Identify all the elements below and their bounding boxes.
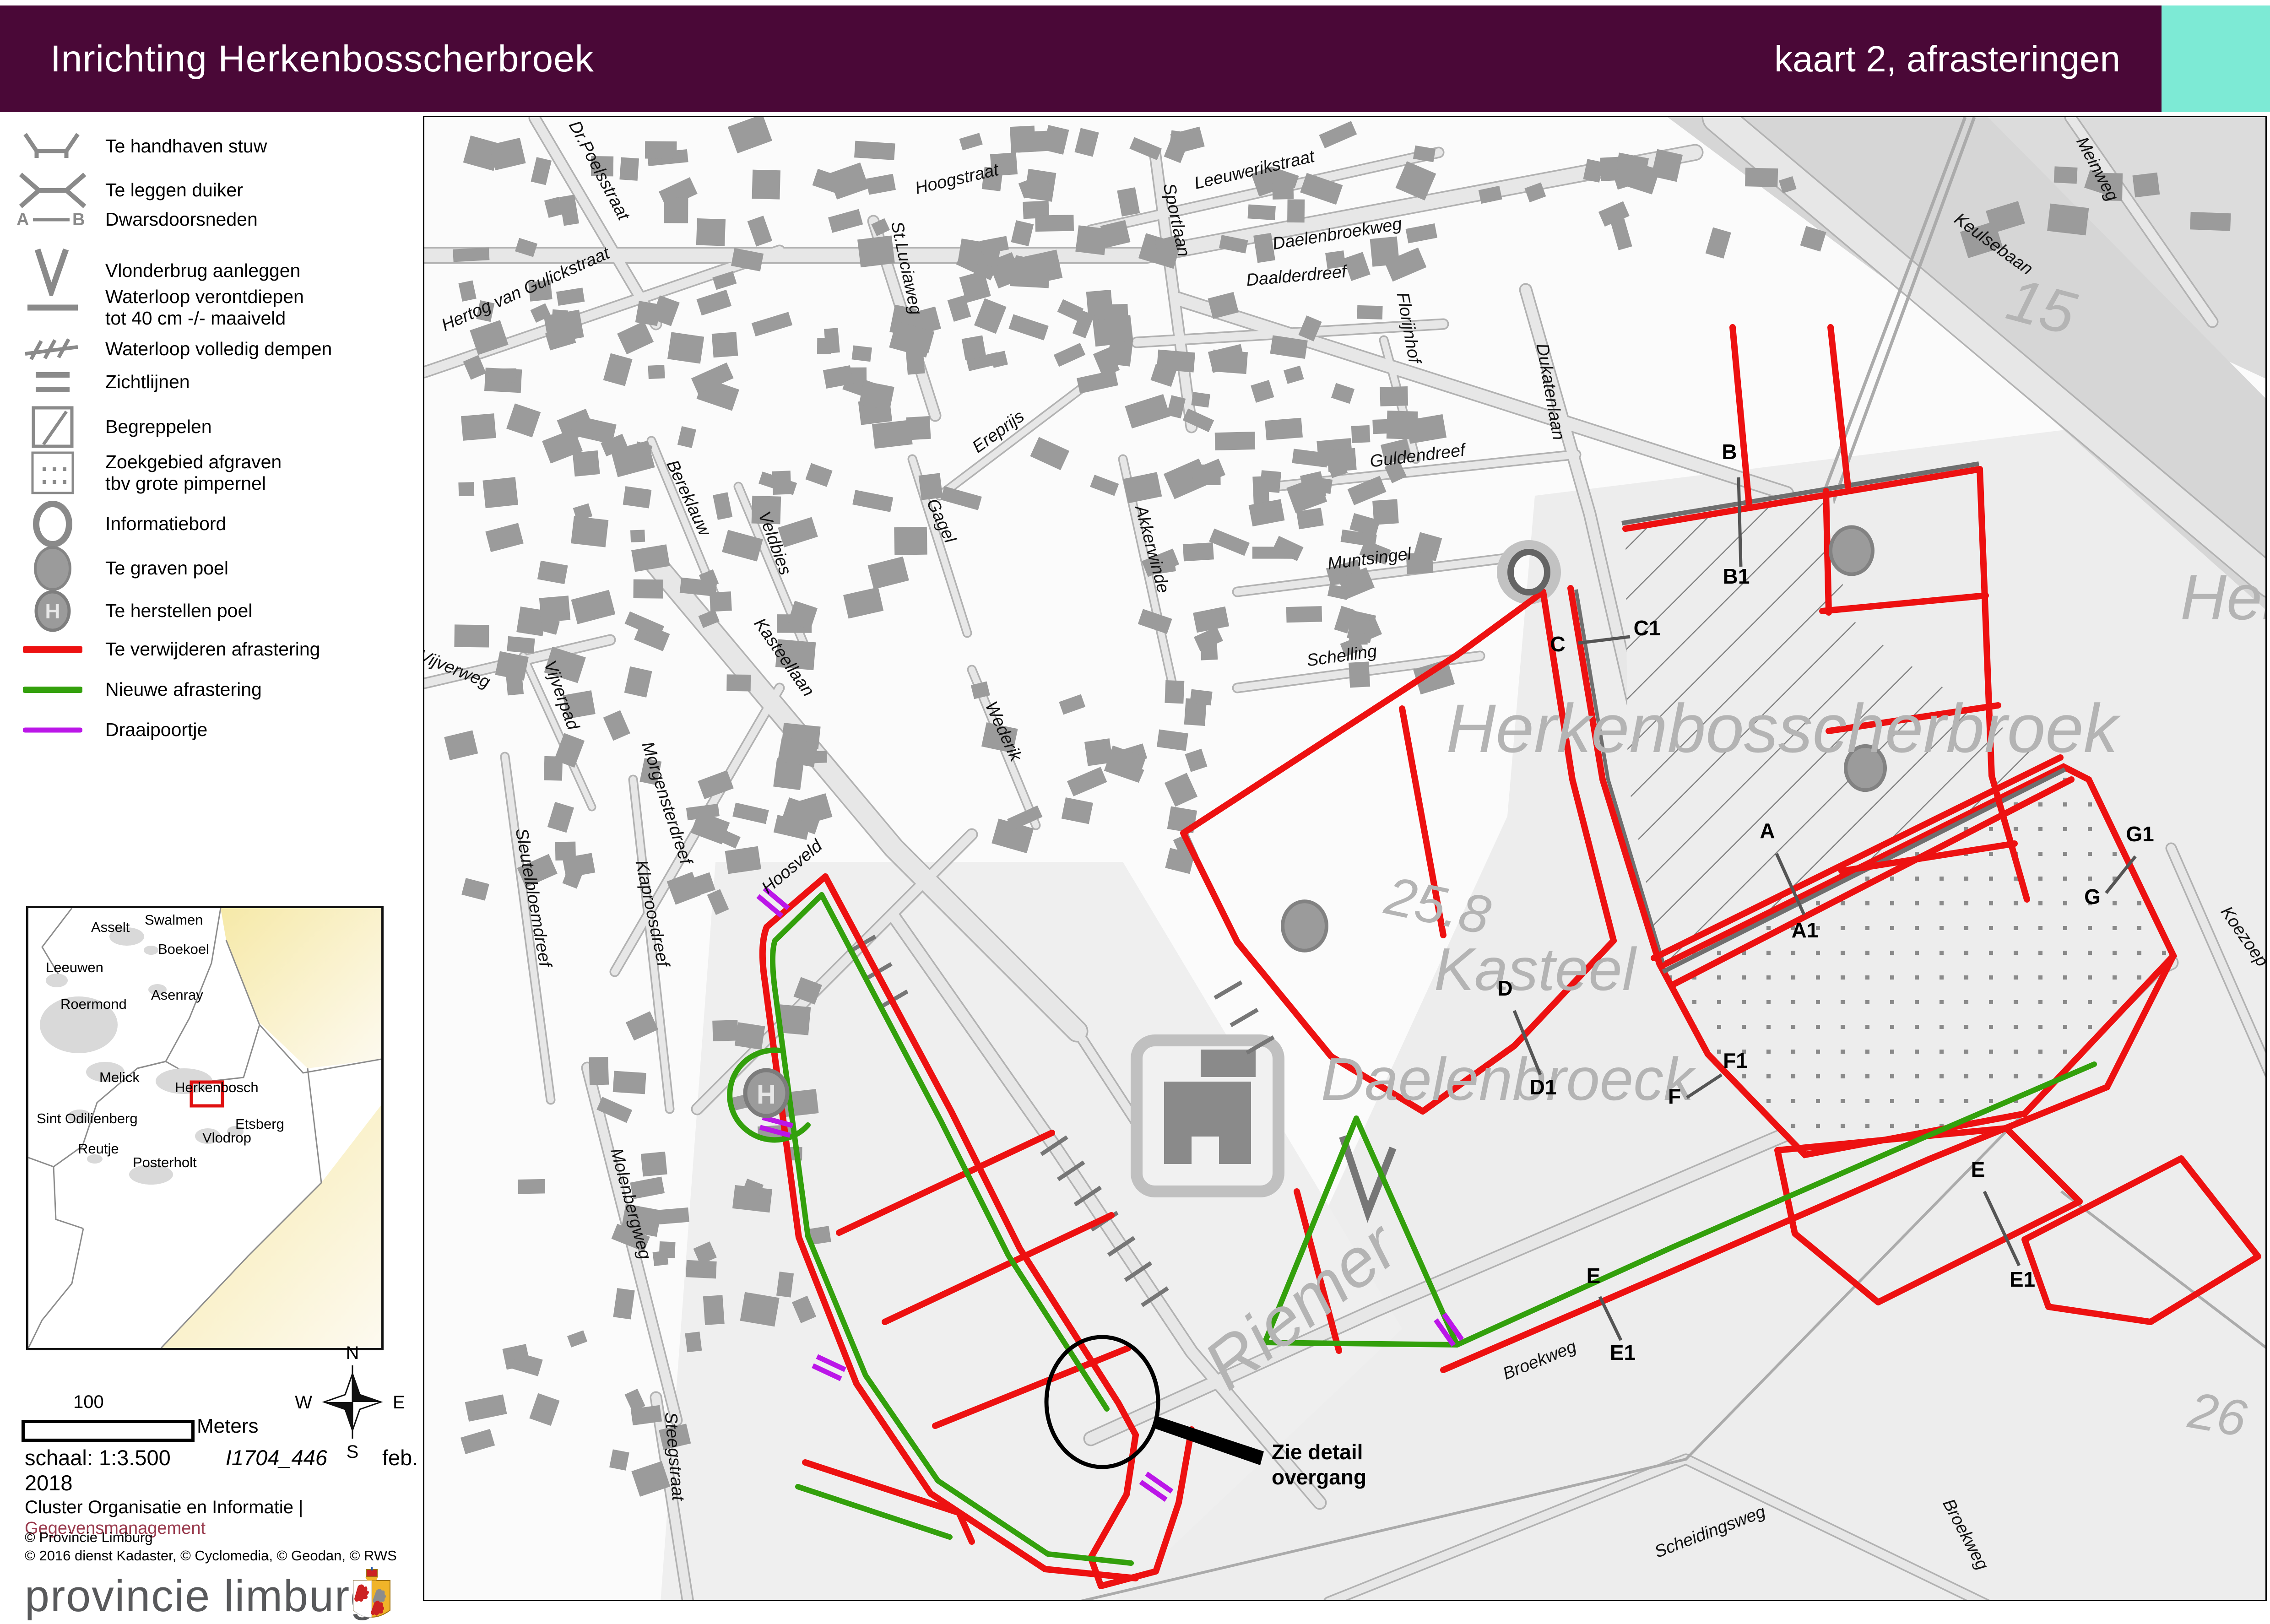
zoekgebied-icon	[0, 450, 105, 496]
page-title: Inrichting Herkenbosscherbroek	[0, 38, 594, 81]
zichtlijnen-icon	[0, 368, 105, 396]
legend-item-label: Begreppelen	[105, 416, 212, 438]
legend-item-zichtlijnen: Zichtlijnen	[0, 368, 190, 396]
legend-item-label: Vlonderbrug aanleggen	[105, 260, 300, 281]
province-coat-of-arms	[344, 1567, 399, 1624]
header-bar: Inrichting Herkenbosscherbroek kaart 2, …	[0, 5, 2162, 112]
inset-place-label: Vlodrop	[202, 1130, 251, 1146]
section-leader-line	[1739, 477, 1741, 567]
section-label-d: D	[1497, 976, 1512, 1000]
svg-text:B: B	[72, 210, 85, 229]
te-herstellen-poel-mark: H	[745, 1070, 787, 1116]
section-label-a: A	[1760, 819, 1775, 843]
legend-item-label: Nieuwe afrastering	[105, 679, 262, 700]
dwarsdoorsnede-icon: AB	[0, 208, 105, 231]
begreppelen-icon	[0, 404, 105, 450]
legend-item-label: Zichtlijnen	[105, 371, 190, 393]
watermark-26: 26	[2184, 1381, 2251, 1448]
copyright-sources: © 2016 dienst Kadaster, © Cyclomedia, © …	[25, 1548, 397, 1564]
svg-text:A: A	[16, 210, 29, 229]
legend-item-waterloop-dempen: Waterloop volledig dempen	[0, 336, 332, 363]
scalebar-unit: Meters	[197, 1415, 258, 1438]
copyright-province: © Provincie Limburg	[25, 1529, 153, 1546]
rode-lijn-icon	[0, 643, 105, 656]
inset-place-label: Melick	[99, 1069, 140, 1085]
inset-place-label: Asenray	[151, 987, 203, 1003]
legend-item-stuw: Te handhaven stuw	[0, 130, 267, 162]
section-label-e: E	[1587, 1264, 1601, 1288]
duiker-icon	[0, 170, 105, 211]
section-label-g1: G1	[2126, 822, 2154, 846]
watermark-kasteel: Kasteel	[1434, 936, 1637, 1003]
fence-to-remove	[1826, 491, 1829, 612]
compass-west-label: W	[295, 1392, 312, 1413]
section-label-f: F	[1668, 1084, 1681, 1108]
svg-text:H: H	[45, 599, 60, 623]
waterloop-dempen-icon	[0, 336, 105, 363]
section-label-e1: E1	[1610, 1341, 1636, 1364]
watermark-daelenbroeck: Daelenbroeck	[1321, 1045, 1696, 1113]
inset-overview-map: AsseltSwalmenBoekoelLeeuwenRoermondAsenr…	[26, 906, 384, 1350]
inset-place-label: Swalmen	[145, 912, 203, 928]
legend-item-te-herstellen-poel: HTe herstellen poel	[0, 588, 252, 634]
te-graven-poel-icon	[0, 543, 105, 594]
legend-item-label: Dwarsdoorsneden	[105, 209, 258, 230]
section-label-a1: A1	[1792, 918, 1819, 942]
legend-item-label: Draaipoortje	[105, 719, 207, 741]
scale-value: schaal: 1:3.500	[25, 1445, 171, 1470]
section-label-b1: B1	[1723, 564, 1750, 588]
compass-rose: NSWE	[293, 1343, 412, 1462]
section-label-c1: C1	[1634, 616, 1661, 640]
te-herstellen-poel-icon: H	[0, 588, 105, 634]
legend-item-label: Te graven poel	[105, 558, 228, 579]
waterloop-verontdiepen-icon	[0, 301, 105, 314]
inset-place-label: Posterholt	[133, 1154, 197, 1170]
informatiebord-icon	[0, 499, 105, 549]
legend-item-rode-lijn: Te verwijderen afrastering	[0, 639, 320, 660]
inset-place-label: Leeuwen	[46, 959, 103, 975]
legend-item-dwarsdoorsnede: ABDwarsdoorsneden	[0, 208, 258, 231]
legend-item-te-graven-poel: Te graven poel	[0, 543, 228, 594]
scalebar-distance: 100	[73, 1392, 104, 1413]
legend-item-label: Waterloop verontdiepen tot 40 cm -/- maa…	[105, 286, 304, 329]
watermark-herkenbosscherbroek: Herkenbosscherbroek	[1446, 690, 2121, 767]
inset-place-label: Herkenbosch	[175, 1079, 259, 1095]
header-accent-block	[2162, 5, 2270, 112]
compass-east-label: E	[393, 1392, 405, 1413]
inset-map-canvas: AsseltSwalmenBoekoelLeeuwenRoermondAsenr…	[28, 908, 381, 1348]
groene-lijn-icon	[0, 683, 105, 697]
legend-item-label: Te herstellen poel	[105, 600, 252, 622]
section-label-f1: F1	[1723, 1049, 1748, 1072]
legend-item-draaipoortje: Draaipoortje	[0, 719, 207, 741]
legend-item-label: Te leggen duiker	[105, 179, 243, 201]
scale-statement: schaal: 1:3.500I1704_446feb. 2018	[25, 1445, 423, 1495]
legend-item-label: Waterloop volledig dempen	[105, 338, 332, 360]
herstel-poel-letter: H	[757, 1080, 776, 1110]
inset-place-label: Roermond	[60, 996, 127, 1012]
legend-item-informatiebord: Informatiebord	[0, 499, 226, 549]
legend-item-begreppelen: Begreppelen	[0, 404, 212, 450]
section-label-c: C	[1550, 632, 1565, 656]
inset-place-label: Reutje	[78, 1141, 119, 1157]
side-panel: Te handhaven stuwTe leggen duikerABDwars…	[0, 112, 423, 1606]
te-graven-poel-mark	[1831, 527, 1873, 574]
document-id: I1704_446	[226, 1445, 327, 1470]
scalebar	[22, 1420, 195, 1442]
legend-item-label: Te handhaven stuw	[105, 135, 267, 157]
main-map: H HerkenbosscherbroekKasteelDaelenbroeck…	[423, 116, 2267, 1601]
legend-item-label: Informatiebord	[105, 513, 226, 535]
detail-note-line1: Zie detail	[1272, 1440, 1363, 1464]
province-logo-text: provincie limburg	[25, 1570, 376, 1622]
compass-north-label: N	[346, 1343, 359, 1363]
legend-item-zoekgebied: Zoekgebied afgraven tbv grote pimpernel	[0, 450, 282, 496]
legend-item-groene-lijn: Nieuwe afrastering	[0, 679, 262, 700]
watermark-hei: Hei	[2180, 561, 2265, 633]
draaipoortje-icon	[0, 723, 105, 737]
inset-place-label: Sint Odilienberg	[37, 1110, 138, 1126]
stuw-icon	[0, 130, 105, 162]
section-label-b: B	[1722, 440, 1737, 464]
section-label-g: G	[2084, 885, 2101, 909]
cluster-name: Cluster Organisatie en Informatie |	[25, 1497, 303, 1517]
map-canvas: H HerkenbosscherbroekKasteelDaelenbroeck…	[424, 117, 2265, 1600]
inset-place-label: Boekoel	[158, 941, 209, 957]
te-graven-poel-mark	[1283, 901, 1327, 951]
legend-item-label: Zoekgebied afgraven tbv grote pimpernel	[105, 451, 282, 494]
section-label-d1: D1	[1530, 1075, 1557, 1099]
legend-item-duiker: Te leggen duiker	[0, 170, 243, 211]
section-label-e: E	[1971, 1158, 1985, 1181]
legend-item-label: Te verwijderen afrastering	[105, 639, 320, 660]
map-sheet-title: kaart 2, afrasteringen	[1774, 38, 2162, 80]
section-label-e1: E1	[2010, 1267, 2035, 1291]
detail-note-line2: overgang	[1272, 1465, 1366, 1489]
legend-item-waterloop-verontdiepen: Waterloop verontdiepen tot 40 cm -/- maa…	[0, 286, 304, 329]
inset-place-label: Asselt	[91, 919, 130, 935]
